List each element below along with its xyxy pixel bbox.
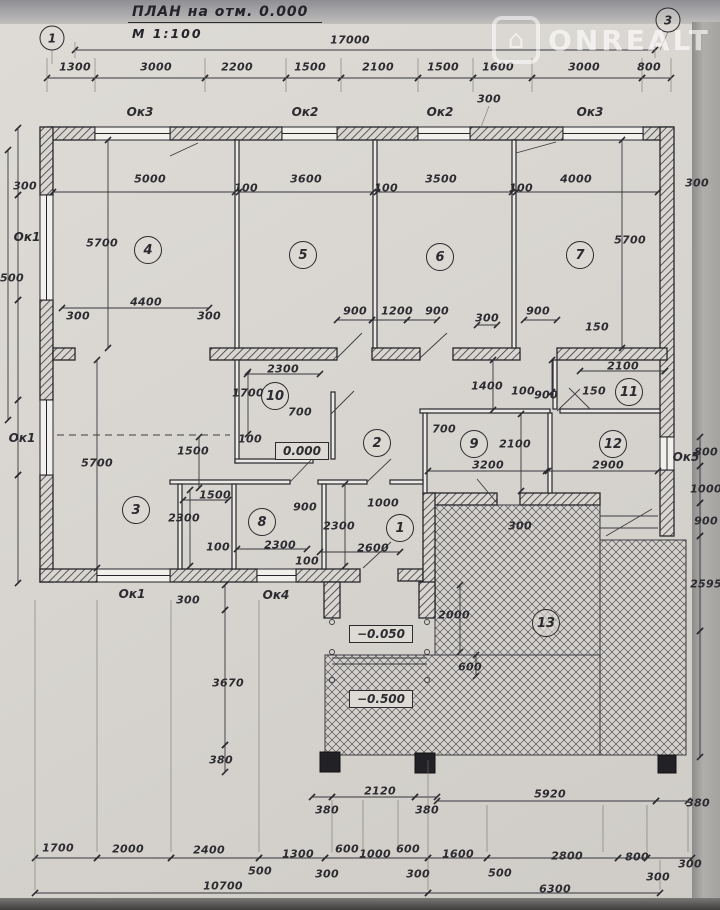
dimension-label: 380 [686, 797, 710, 810]
watermark-text: ONREALT [548, 24, 711, 57]
title-block: ПЛАН на отм. 0.000 М 1:100 [128, 4, 322, 41]
dimension-label: 2300 [323, 520, 355, 533]
window-label: Ок1 [14, 230, 41, 244]
dimension-label: 7500 [0, 272, 24, 285]
dimension-label: 380 [315, 804, 339, 817]
annotation-layer: 1700013003000220015002100150016003000800… [0, 0, 720, 910]
dimension-label: 900 [293, 501, 317, 514]
dimension-label: 300 [315, 868, 339, 881]
room-number: 2 [363, 429, 391, 457]
dimension-label: 150 [582, 385, 606, 398]
dimension-label: 700 [288, 406, 312, 419]
room-number: 7 [566, 241, 594, 269]
dimension-label: 900 [343, 305, 367, 318]
level-mark: −0.050 [349, 625, 413, 643]
dimension-label: 5700 [81, 457, 113, 470]
watermark: ⌂ ONREALT [492, 16, 711, 64]
room-number: 9 [460, 430, 488, 458]
dimension-label: 300 [646, 871, 670, 884]
dimension-label: 2600 [357, 542, 389, 555]
dimension-label: 300 [678, 858, 702, 871]
dimension-label: 900 [534, 389, 558, 402]
dimension-label: 3500 [425, 173, 457, 186]
window-label: Ок4 [263, 588, 290, 602]
dimension-label: 300 [13, 180, 37, 193]
window-label: Ок2 [292, 105, 319, 119]
dimension-label: 2300 [168, 512, 200, 525]
dimension-label: 500 [248, 865, 272, 878]
room-number: 11 [615, 378, 643, 406]
dimension-label: 5920 [534, 788, 566, 801]
dimension-label: 1000 [690, 483, 720, 496]
room-number: 6 [426, 243, 454, 271]
dimension-label: 900 [694, 515, 718, 528]
dimension-label: 150 [585, 321, 609, 334]
dimension-label: 2400 [193, 844, 225, 857]
dimension-label: 2120 [364, 785, 396, 798]
window-label: Ок1 [119, 587, 146, 601]
dimension-label: 4400 [130, 296, 162, 309]
room-number: 3 [122, 496, 150, 524]
dimension-label: 1300 [282, 848, 314, 861]
floor-plan-photo: .w{fill:url(#h);stroke:#26262a;stroke-wi… [0, 0, 720, 910]
dimension-label: 2000 [438, 609, 470, 622]
dimension-label: 100 [374, 182, 398, 195]
room-number: 5 [289, 241, 317, 269]
dimension-label: 17000 [330, 34, 370, 47]
dimension-label: 300 [475, 312, 499, 325]
dimension-label: 3600 [290, 173, 322, 186]
dimension-label: 380 [209, 754, 233, 767]
dimension-label: 100 [238, 433, 262, 446]
axis-marker: 1 [40, 26, 65, 51]
dimension-label: 10700 [203, 880, 243, 893]
dimension-label: 1500 [294, 61, 326, 74]
dimension-label: 300 [66, 310, 90, 323]
level-mark: −0.500 [349, 690, 413, 708]
dimension-label: 1600 [442, 848, 474, 861]
dimension-label: 900 [526, 305, 550, 318]
dimension-label: 5700 [86, 237, 118, 250]
room-number: 8 [248, 508, 276, 536]
dimension-label: 1200 [381, 305, 413, 318]
dimension-label: 2800 [551, 850, 583, 863]
dimension-label: 2100 [499, 438, 531, 451]
dimension-label: 6300 [539, 883, 571, 896]
room-number: 1 [386, 514, 414, 542]
house-icon: ⌂ [492, 16, 540, 64]
window-label: Ок3 [127, 105, 154, 119]
dimension-label: 300 [477, 93, 501, 106]
dimension-label: 300 [406, 868, 430, 881]
dimension-label: 100 [509, 182, 533, 195]
dimension-label: 1000 [367, 497, 399, 510]
dimension-label: 1500 [177, 445, 209, 458]
level-mark: 0.000 [275, 442, 329, 460]
dimension-label: 300 [508, 520, 532, 533]
dimension-label: 600 [458, 661, 482, 674]
dimension-label: 1700 [42, 842, 74, 855]
window-label: Ок5 [673, 450, 700, 464]
dimension-label: 100 [206, 541, 230, 554]
dimension-label: 600 [396, 843, 420, 856]
dimension-label: 2000 [112, 843, 144, 856]
dimension-label: 5000 [134, 173, 166, 186]
dimension-label: 300 [176, 594, 200, 607]
dimension-label: 300 [197, 310, 221, 323]
window-label: Ок2 [427, 105, 454, 119]
dimension-label: 100 [295, 555, 319, 568]
plan-scale: М 1:100 [128, 23, 322, 41]
dimension-label: 2900 [592, 459, 624, 472]
dimension-label: 1000 [359, 848, 391, 861]
dimension-label: 1400 [471, 380, 503, 393]
window-label: Ок3 [577, 105, 604, 119]
plan-title: ПЛАН на отм. 0.000 [128, 4, 322, 23]
dimension-label: 900 [425, 305, 449, 318]
dimension-label: 1700 [232, 387, 264, 400]
dimension-label: 100 [234, 182, 258, 195]
dimension-label: 4000 [560, 173, 592, 186]
dimension-label: 2300 [264, 539, 296, 552]
dimension-label: 800 [625, 851, 649, 864]
dimension-label: 700 [432, 423, 456, 436]
room-number: 4 [134, 236, 162, 264]
dimension-label: 2100 [362, 61, 394, 74]
dimension-label: 100 [511, 385, 535, 398]
dimension-label: 380 [415, 804, 439, 817]
dimension-label: 600 [335, 843, 359, 856]
dimension-label: 1500 [427, 61, 459, 74]
dimension-label: 1300 [59, 61, 91, 74]
dimension-label: 500 [488, 867, 512, 880]
dimension-label: 5700 [614, 234, 646, 247]
dimension-label: 1500 [199, 489, 231, 502]
room-number: 13 [532, 609, 560, 637]
room-number: 12 [599, 430, 627, 458]
dimension-label: 300 [685, 177, 709, 190]
dimension-label: 3000 [140, 61, 172, 74]
dimension-label: 2200 [221, 61, 253, 74]
room-number: 10 [261, 382, 289, 410]
dimension-label: 2100 [607, 360, 639, 373]
dimension-label: 2300 [267, 363, 299, 376]
dimension-label: 3200 [472, 459, 504, 472]
dimension-label: 3670 [212, 677, 244, 690]
dimension-label: 2595 [690, 578, 720, 591]
window-label: Ок1 [9, 431, 36, 445]
